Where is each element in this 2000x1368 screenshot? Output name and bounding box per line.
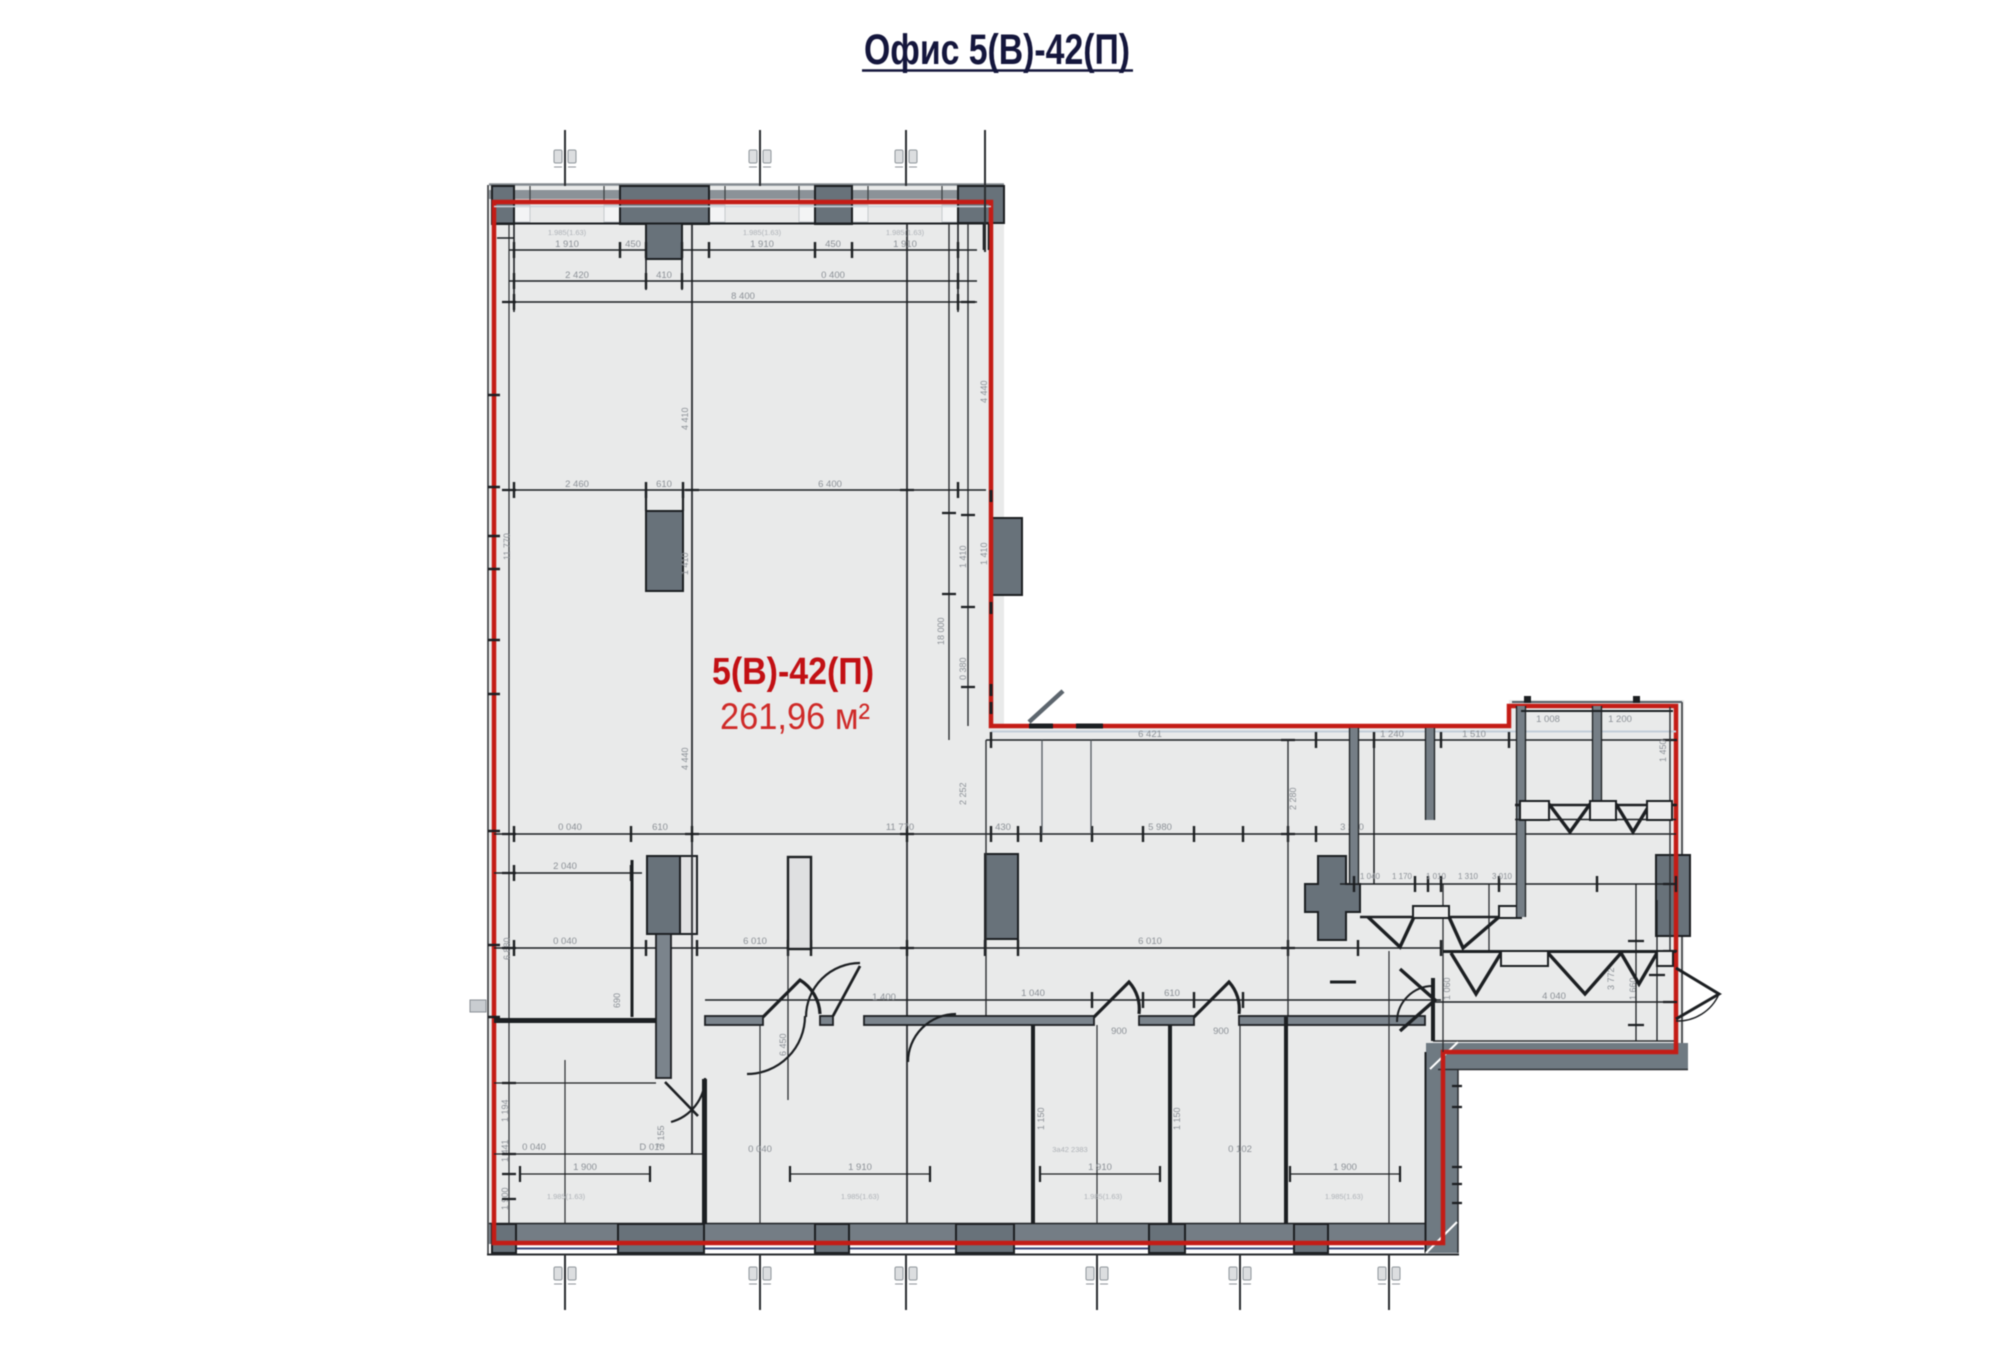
svg-text:1 510: 1 510 (1462, 729, 1486, 740)
svg-text:2 040: 2 040 (553, 861, 577, 872)
svg-text:1.985(1.63): 1.985(1.63) (548, 228, 587, 237)
svg-text:2 420: 2 420 (565, 270, 589, 281)
svg-text:450: 450 (625, 239, 641, 250)
svg-text:1.985(1.63): 1.985(1.63) (841, 1192, 880, 1201)
svg-text:3 010: 3 010 (1492, 872, 1513, 881)
svg-text:1 910: 1 910 (1088, 1162, 1112, 1173)
svg-text:0 040: 0 040 (558, 822, 582, 833)
svg-text:610: 610 (656, 479, 672, 490)
svg-text:5(В)-42(П): 5(В)-42(П) (712, 651, 874, 693)
svg-text:410: 410 (656, 270, 672, 281)
svg-text:1.985(1.63): 1.985(1.63) (1084, 1192, 1123, 1201)
svg-text:6 450: 6 450 (778, 1033, 788, 1056)
svg-text:1 450: 1 450 (1658, 739, 1668, 762)
svg-text:1.985(1.63): 1.985(1.63) (1325, 1192, 1364, 1201)
svg-text:690: 690 (612, 993, 622, 1008)
svg-text:1 170: 1 170 (1392, 872, 1413, 881)
svg-text:5 980: 5 980 (1148, 822, 1172, 833)
svg-text:1 150: 1 150 (1036, 1107, 1046, 1130)
svg-text:1.985(1.63): 1.985(1.63) (886, 228, 925, 237)
svg-text:0 040: 0 040 (553, 936, 577, 947)
svg-text:1 910: 1 910 (750, 239, 774, 250)
svg-text:1 040: 1 040 (1021, 988, 1045, 999)
svg-text:0 040: 0 040 (522, 1142, 546, 1153)
svg-text:1 240: 1 240 (1380, 729, 1404, 740)
svg-text:3a42 2383: 3a42 2383 (1052, 1145, 1087, 1154)
svg-text:1 410: 1 410 (680, 552, 690, 575)
svg-text:1 010: 1 010 (1426, 872, 1447, 881)
svg-text:6 421: 6 421 (1138, 729, 1162, 740)
svg-text:2 252: 2 252 (958, 782, 968, 805)
svg-text:610: 610 (1164, 988, 1180, 999)
svg-text:1 194: 1 194 (500, 1099, 510, 1122)
svg-text:0 400: 0 400 (821, 270, 845, 281)
svg-text:4 440: 4 440 (979, 380, 989, 403)
svg-text:Офис 5(В)-42(П): Офис 5(В)-42(П) (864, 26, 1130, 74)
svg-text:900: 900 (1213, 1026, 1229, 1037)
svg-text:6 010: 6 010 (1138, 936, 1162, 947)
svg-text:1 910: 1 910 (555, 239, 579, 250)
svg-text:7 155: 7 155 (656, 1125, 666, 1148)
svg-text:0 102: 0 102 (1228, 1144, 1252, 1155)
svg-text:0 380: 0 380 (958, 657, 968, 680)
svg-text:11 770: 11 770 (502, 533, 512, 560)
svg-text:1 040: 1 040 (1360, 872, 1381, 881)
svg-text:261,96 м²: 261,96 м² (720, 696, 870, 737)
svg-text:1 060: 1 060 (1442, 977, 1452, 1000)
svg-text:1 400: 1 400 (872, 992, 896, 1003)
svg-text:1 441: 1 441 (500, 1139, 510, 1162)
svg-text:1.985(1.63): 1.985(1.63) (743, 228, 782, 237)
svg-text:11 770: 11 770 (886, 822, 914, 833)
svg-text:1 410: 1 410 (958, 545, 968, 568)
svg-text:1 900: 1 900 (573, 1162, 597, 1173)
svg-text:6 400: 6 400 (818, 479, 842, 490)
svg-text:6 010: 6 010 (743, 936, 767, 947)
svg-text:610: 610 (652, 822, 668, 833)
svg-text:1.985(1.63): 1.985(1.63) (547, 1192, 586, 1201)
svg-text:450: 450 (825, 239, 841, 250)
svg-text:1 200: 1 200 (1608, 714, 1632, 725)
svg-text:18 000: 18 000 (936, 617, 946, 645)
svg-text:2 460: 2 460 (565, 479, 589, 490)
svg-text:4 410: 4 410 (680, 407, 690, 430)
svg-text:1 310: 1 310 (1458, 872, 1479, 881)
svg-text:1 910: 1 910 (848, 1162, 872, 1173)
svg-text:1 150: 1 150 (1172, 1107, 1182, 1130)
svg-text:1 008: 1 008 (1536, 714, 1560, 725)
svg-text:8 400: 8 400 (731, 291, 755, 302)
svg-text:4 440: 4 440 (680, 747, 690, 770)
svg-text:0 040: 0 040 (748, 1144, 772, 1155)
svg-text:1 410: 1 410 (979, 542, 989, 565)
svg-text:2 280: 2 280 (1288, 787, 1298, 810)
svg-text:1 900: 1 900 (1333, 1162, 1357, 1173)
svg-text:4 040: 4 040 (1542, 991, 1566, 1002)
svg-text:1 910: 1 910 (893, 239, 917, 250)
svg-text:900: 900 (1111, 1026, 1127, 1037)
svg-text:430: 430 (995, 822, 1011, 833)
